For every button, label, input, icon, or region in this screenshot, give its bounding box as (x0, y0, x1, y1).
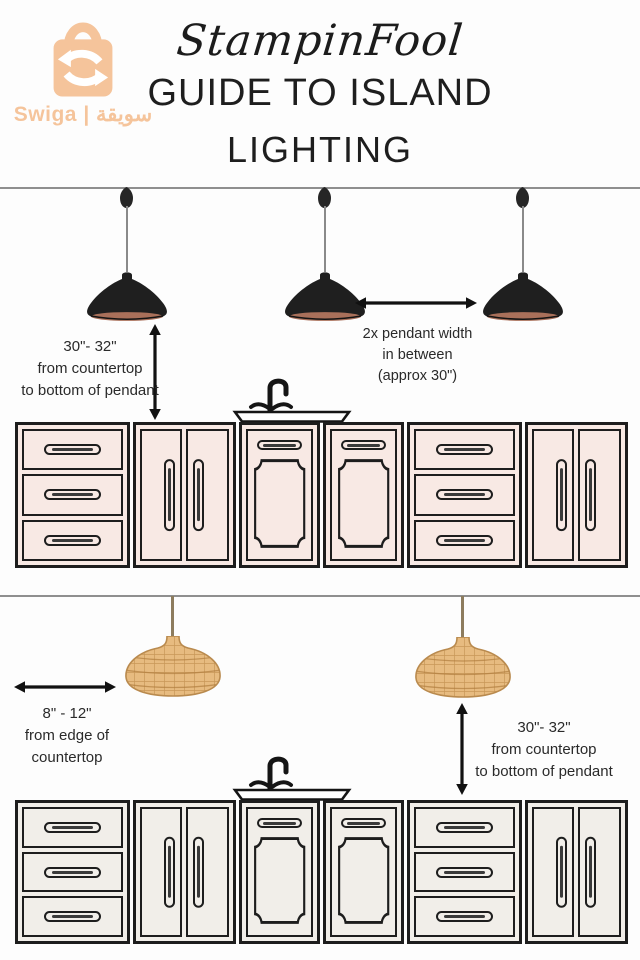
cabinet-drawer (22, 807, 123, 848)
black-pendant-light-icon (81, 270, 173, 322)
cabinet-drawer (414, 896, 515, 937)
door-handle (193, 837, 204, 908)
cabinet-unit-doors (525, 422, 628, 568)
cabinet-drawer (414, 474, 515, 515)
cabinet-drawer (22, 852, 123, 893)
drawer-handle (44, 489, 100, 500)
page-title-line2: LIGHTING (0, 129, 640, 171)
drawer-handle (44, 822, 100, 833)
drawer-handle (44, 535, 100, 546)
pendant-canopy-icon (317, 187, 332, 208)
note-line: 30"- 32" (455, 717, 633, 739)
wicker-pendant-light-icon (124, 636, 222, 697)
note-line: countertop (0, 747, 134, 769)
pendant-canopy-icon (515, 187, 530, 208)
cabinet-unit-panel (239, 800, 321, 944)
door-handle (257, 440, 303, 450)
door-panel-inset (253, 457, 306, 550)
cabinet-door (532, 807, 574, 937)
faucet-icon (240, 376, 306, 412)
drawer-handle (436, 867, 492, 878)
door-handle (193, 459, 204, 531)
drawer-handle (44, 867, 100, 878)
cabinet-drawer (414, 520, 515, 561)
black-pendant-light-icon (477, 270, 569, 322)
door-handle (164, 459, 175, 531)
note-line: (approx 30") (330, 366, 505, 387)
spacing-measure-arrow (355, 294, 477, 312)
cabinet-panel-door (330, 807, 398, 937)
note-line: to bottom of pendant (4, 380, 176, 402)
drawer-handle (436, 535, 492, 546)
cabinet-unit-doors (133, 422, 236, 568)
note-line: to bottom of pendant (455, 761, 633, 783)
drawer-handle (44, 444, 100, 455)
cabinet-door (578, 807, 620, 937)
pendant-cord (126, 206, 128, 272)
cabinet-unit-panel (323, 422, 405, 568)
note-line: from edge of (0, 725, 134, 747)
cabinet-drawer (22, 896, 123, 937)
cabinet-unit-drawers (407, 800, 522, 944)
cabinet-drawer (414, 807, 515, 848)
faucet-icon (240, 754, 306, 790)
cabinet-panel-door (246, 807, 314, 937)
brand-logo-text: StampinFool (0, 16, 640, 66)
cabinet-unit-panel (323, 800, 405, 944)
pendant-spacing-note: 2x pendant width in between (approx 30") (330, 324, 505, 387)
door-panel-inset (337, 457, 390, 550)
door-handle (556, 459, 567, 531)
cabinet-unit-drawers (15, 800, 130, 944)
drawer-handle (436, 822, 492, 833)
cabinet-drawer (22, 474, 123, 515)
cabinet-door (532, 429, 574, 561)
wicker-pendant-cord (171, 596, 174, 638)
cabinet-unit-panel (239, 422, 321, 568)
door-handle (164, 837, 175, 908)
cabinet-row-bottom (15, 800, 628, 944)
door-handle (585, 459, 596, 531)
cabinet-drawer (22, 520, 123, 561)
note-line: 8" - 12" (0, 703, 134, 725)
cabinet-door (140, 807, 182, 937)
pendant-height-note: 30"- 32" from countertop to bottom of pe… (4, 336, 176, 402)
ceiling-line-bottom (0, 595, 640, 597)
door-handle (257, 818, 303, 828)
cabinet-row-top (15, 422, 628, 568)
door-handle (341, 818, 387, 828)
cabinet-unit-doors (133, 800, 236, 944)
cabinet-drawer (22, 429, 123, 470)
note-line: in between (330, 345, 505, 366)
pendant-canopy-icon (119, 187, 134, 208)
cabinet-drawer (414, 429, 515, 470)
cabinet-door (578, 429, 620, 561)
edge-distance-note: 8" - 12" from edge of countertop (0, 703, 134, 769)
cabinet-door (186, 807, 228, 937)
cabinet-door (140, 429, 182, 561)
wicker-pendant-cord (461, 596, 464, 638)
drawer-handle (436, 444, 492, 455)
door-panel-inset (337, 835, 390, 926)
infographic-page: Swiga | سويقة StampinFool GUIDE TO ISLAN… (0, 0, 640, 960)
wicker-pendant-light-icon (414, 637, 512, 698)
drawer-handle (436, 489, 492, 500)
wicker-height-note: 30"- 32" from countertop to bottom of pe… (455, 717, 633, 783)
drawer-handle (436, 911, 492, 922)
door-handle (341, 440, 387, 450)
cabinet-panel-door (246, 429, 314, 561)
door-handle (585, 837, 596, 908)
cabinet-unit-doors (525, 800, 628, 944)
note-line: 2x pendant width (330, 324, 505, 345)
page-title-line1: GUIDE TO ISLAND (0, 72, 640, 115)
cabinet-unit-drawers (407, 422, 522, 568)
pendant-cord (324, 206, 326, 272)
cabinet-door (186, 429, 228, 561)
header: StampinFool GUIDE TO ISLAND LIGHTING (0, 0, 640, 171)
cabinet-drawer (414, 852, 515, 893)
door-panel-inset (253, 835, 306, 926)
note-line: 30"- 32" (4, 336, 176, 358)
edge-measure-arrow (14, 678, 116, 696)
cabinet-panel-door (330, 429, 398, 561)
drawer-handle (44, 911, 100, 922)
pendant-cord (522, 206, 524, 272)
note-line: from countertop (4, 358, 176, 380)
door-handle (556, 837, 567, 908)
cabinet-unit-drawers (15, 422, 130, 568)
note-line: from countertop (455, 739, 633, 761)
